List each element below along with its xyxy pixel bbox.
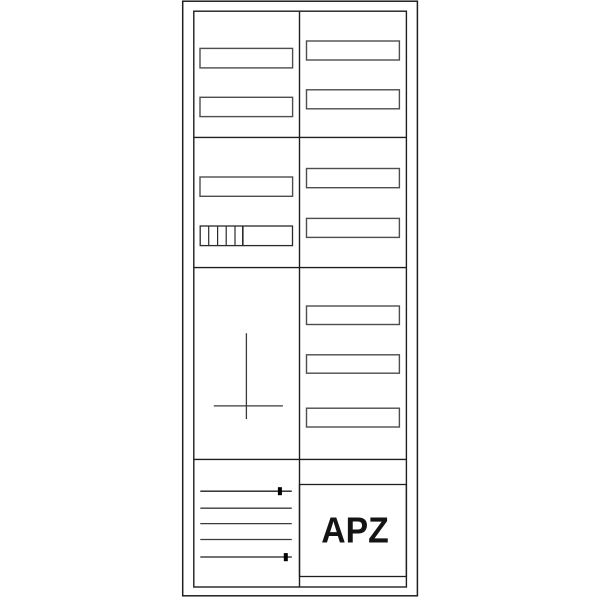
- svg-text:APZ: APZ: [321, 510, 389, 551]
